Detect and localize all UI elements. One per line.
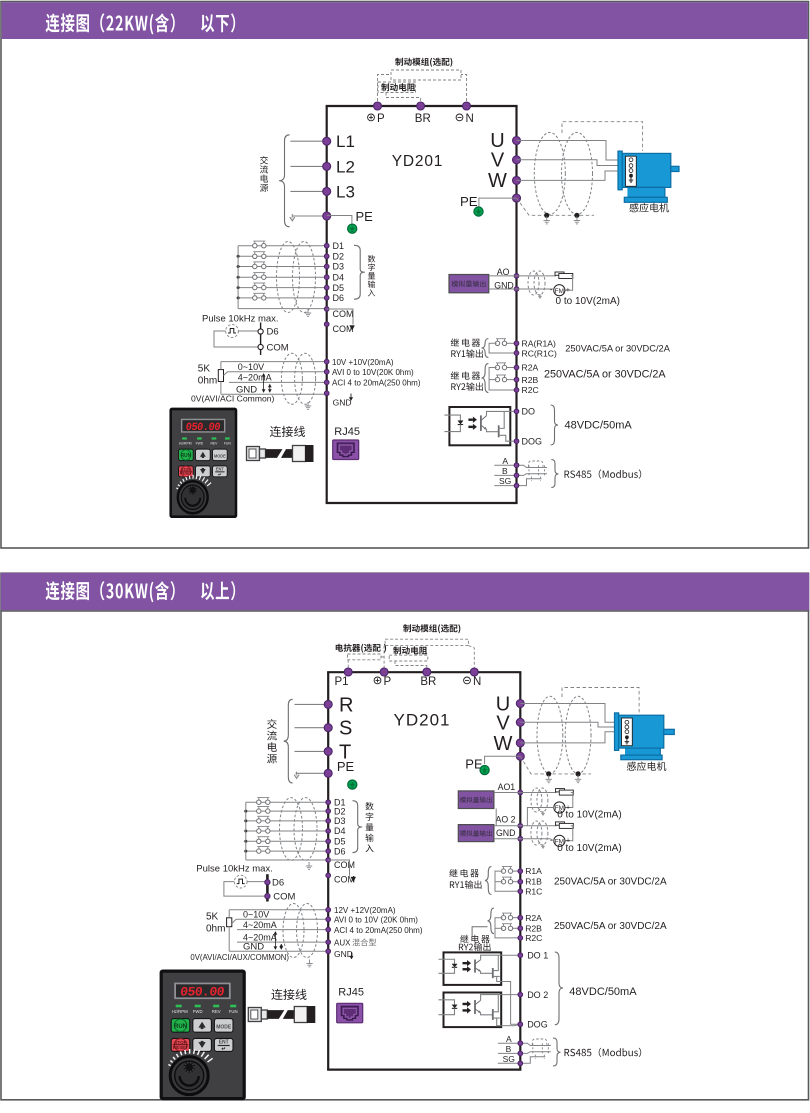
svg-text:MODE: MODE <box>214 453 226 458</box>
svg-text:COM: COM <box>273 891 295 902</box>
svg-text:AVI 0 to 10V(20K 0hm): AVI 0 to 10V(20K 0hm) <box>332 368 414 377</box>
svg-text:DO 1: DO 1 <box>527 950 548 960</box>
svg-text:12V +12V(20mA): 12V +12V(20mA) <box>334 906 396 915</box>
svg-text:R1C: R1C <box>525 887 542 897</box>
svg-text:W: W <box>488 170 507 192</box>
svg-text:48VDC/50mA: 48VDC/50mA <box>569 986 637 998</box>
svg-text:AO 2: AO 2 <box>495 815 515 825</box>
svg-text:REV: REV <box>212 1009 221 1014</box>
svg-text:RJ45: RJ45 <box>334 426 360 438</box>
svg-text:0hm: 0hm <box>206 924 225 935</box>
svg-text:ACI 4 to 20mA(250 0hm): ACI 4 to 20mA(250 0hm) <box>332 379 421 388</box>
svg-text:D6: D6 <box>334 846 346 856</box>
svg-text:N: N <box>473 676 481 688</box>
svg-text:GND: GND <box>243 942 264 953</box>
svg-text:P: P <box>377 113 385 125</box>
svg-text:D4: D4 <box>334 826 346 836</box>
svg-text:↵: ↵ <box>221 1047 226 1053</box>
svg-text:A: A <box>506 1034 512 1044</box>
svg-text:PE: PE <box>337 759 355 774</box>
svg-text:BR: BR <box>420 676 436 688</box>
svg-text:P: P <box>384 676 392 688</box>
svg-text:GND: GND <box>334 949 353 959</box>
svg-text:DO: DO <box>522 407 536 417</box>
svg-text:10V +10V(20mA): 10V +10V(20mA) <box>332 358 394 367</box>
svg-text:DO 2: DO 2 <box>527 990 548 1000</box>
svg-text:COM: COM <box>267 342 289 353</box>
svg-text:B: B <box>502 466 508 476</box>
svg-text:4~20mA: 4~20mA <box>238 373 272 383</box>
svg-text:R2A: R2A <box>525 913 542 923</box>
svg-text:RUN: RUN <box>181 453 192 459</box>
svg-text:SG: SG <box>499 476 511 486</box>
svg-text:D5: D5 <box>334 837 346 847</box>
svg-text:Pulse 10kHz max.: Pulse 10kHz max. <box>202 314 279 325</box>
svg-text:D6: D6 <box>272 878 284 889</box>
svg-text:L3: L3 <box>336 182 355 201</box>
svg-text:COM: COM <box>334 875 355 885</box>
svg-text:FWD: FWD <box>193 1009 203 1014</box>
svg-text:ACI 4 to 20mA(250 0hm): ACI 4 to 20mA(250 0hm) <box>334 926 423 935</box>
svg-text:R2A: R2A <box>522 363 539 373</box>
svg-text:R1B: R1B <box>525 877 542 887</box>
svg-text:RESET: RESET <box>173 1045 189 1050</box>
svg-text:RC(R1C): RC(R1C) <box>522 349 557 359</box>
svg-text:RJ45: RJ45 <box>338 987 364 999</box>
svg-text:Hz/RPM: Hz/RPM <box>179 441 192 445</box>
svg-text:050.00: 050.00 <box>185 422 221 434</box>
svg-text:R2B: R2B <box>525 923 542 933</box>
svg-text:5K: 5K <box>206 912 219 923</box>
svg-text:250VAC/5A or 30VDC/2A: 250VAC/5A or 30VDC/2A <box>565 344 671 354</box>
svg-text:AVI 0 to 10V (20K 0hm): AVI 0 to 10V (20K 0hm) <box>334 916 418 925</box>
svg-text:0V(AVI/ACI Common): 0V(AVI/ACI Common) <box>191 393 275 403</box>
svg-text:BR: BR <box>415 113 431 125</box>
svg-text:YD201: YD201 <box>394 711 451 730</box>
svg-text:R2C: R2C <box>522 385 539 395</box>
svg-text:L2: L2 <box>336 157 355 176</box>
svg-text:R: R <box>339 694 353 716</box>
svg-text:L1: L1 <box>336 132 355 151</box>
svg-text:R1A: R1A <box>525 866 542 876</box>
svg-text:R2B: R2B <box>522 375 539 385</box>
svg-text:D6: D6 <box>333 293 345 303</box>
svg-text:D5: D5 <box>333 283 345 293</box>
svg-text:P1: P1 <box>334 676 348 688</box>
svg-text:0 to 10V(2mA): 0 to 10V(2mA) <box>557 843 621 854</box>
svg-text:PE: PE <box>460 194 478 209</box>
svg-text:0 to 10V(2mA): 0 to 10V(2mA) <box>556 296 620 307</box>
svg-text:MODE: MODE <box>216 1024 232 1030</box>
svg-text:D6: D6 <box>267 327 279 338</box>
svg-text:FM: FM <box>555 288 564 295</box>
svg-text:0~10V: 0~10V <box>238 362 264 372</box>
svg-text:+: + <box>566 287 570 294</box>
svg-text:SG: SG <box>503 1054 515 1064</box>
svg-text:B: B <box>506 1044 512 1054</box>
svg-text:V: V <box>491 149 505 171</box>
svg-text:Hz/RPM: Hz/RPM <box>172 1009 188 1014</box>
svg-text:D4: D4 <box>333 272 345 282</box>
svg-text:REV: REV <box>210 441 218 445</box>
svg-text:RESET: RESET <box>180 472 193 476</box>
svg-text:S: S <box>339 718 352 740</box>
svg-text:0hm: 0hm <box>198 375 217 386</box>
svg-text:0V(AVI/ACI/AUX/COMMON): 0V(AVI/ACI/AUX/COMMON) <box>190 953 289 962</box>
svg-text:YD201: YD201 <box>392 153 443 170</box>
svg-text:DOG: DOG <box>522 437 543 447</box>
svg-text:250VAC/5A or 30VDC/2A: 250VAC/5A or 30VDC/2A <box>554 876 667 887</box>
svg-text:D1: D1 <box>333 241 345 251</box>
svg-text:250VAC/5A or 30VDC/2A: 250VAC/5A or 30VDC/2A <box>544 369 666 381</box>
svg-text:GND: GND <box>496 828 516 838</box>
svg-text:GND: GND <box>333 398 352 408</box>
svg-text:48VDC/50mA: 48VDC/50mA <box>565 419 633 431</box>
svg-text:↵: ↵ <box>218 472 222 477</box>
svg-text:FUN: FUN <box>224 441 231 445</box>
svg-text:Pulse 10kHz max.: Pulse 10kHz max. <box>196 863 273 874</box>
svg-text:D2: D2 <box>334 806 346 816</box>
svg-text:AUX: AUX <box>334 938 351 947</box>
svg-text:V: V <box>496 712 510 734</box>
svg-text:FUN: FUN <box>229 1009 238 1014</box>
svg-text:FWD: FWD <box>196 441 204 445</box>
svg-text:R2C: R2C <box>525 933 542 943</box>
svg-text:PE: PE <box>356 209 374 224</box>
svg-text:A: A <box>502 456 508 466</box>
svg-text:4~20mA: 4~20mA <box>243 920 277 930</box>
svg-text:050.00: 050.00 <box>179 985 225 1000</box>
svg-text:0 to 10V(2mA): 0 to 10V(2mA) <box>557 810 621 821</box>
svg-text:W: W <box>494 733 513 755</box>
svg-text:250VAC/5A or 30VDC/2A: 250VAC/5A or 30VDC/2A <box>554 921 667 932</box>
svg-text:COM: COM <box>334 860 355 870</box>
svg-text:DOG: DOG <box>527 1020 548 1030</box>
svg-text:RUN: RUN <box>174 1024 187 1030</box>
svg-text:D3: D3 <box>333 262 345 272</box>
svg-text:5K: 5K <box>198 363 211 374</box>
svg-text:ENT: ENT <box>219 1040 229 1046</box>
svg-text:ENT: ENT <box>216 466 224 471</box>
svg-text:RA(R1A): RA(R1A) <box>522 338 557 348</box>
svg-text:COM: COM <box>333 309 354 319</box>
svg-text:N: N <box>466 113 474 125</box>
svg-text:D3: D3 <box>334 816 346 826</box>
svg-text:0~10V: 0~10V <box>243 910 269 920</box>
svg-text:D2: D2 <box>333 252 345 262</box>
svg-text:AO1: AO1 <box>498 782 516 792</box>
